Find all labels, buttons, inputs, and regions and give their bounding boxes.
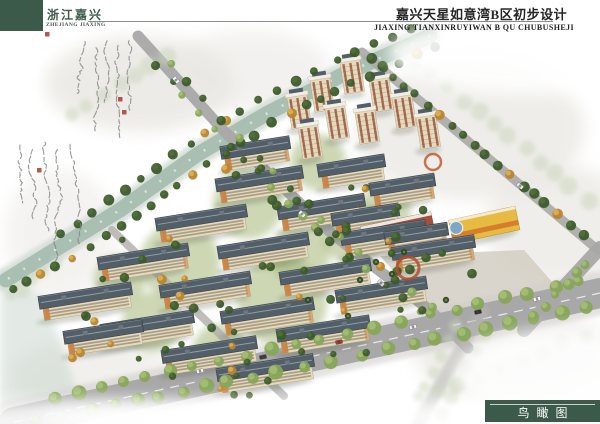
aerial-rendering: [0, 0, 600, 424]
caption-inner-line: [490, 404, 595, 405]
red-seal: [118, 97, 123, 102]
red-seal: [37, 168, 42, 173]
presentation-board: 浙江嘉兴 ZHEJIANG JIAXING 嘉兴天星如意湾B区初步设计 JIAX…: [0, 0, 600, 424]
project-subtitle: JIAXING TIANXINRUYIWAN B QU CHUBUSHEJI: [374, 23, 574, 32]
region-subtitle: ZHEJIANG JIAXING: [46, 22, 106, 28]
red-seal: [122, 110, 127, 115]
project-title: 嘉兴天星如意湾B区初步设计: [396, 4, 567, 23]
red-seal: [45, 32, 50, 37]
caption-label: 鸟瞰图: [485, 407, 600, 419]
view-caption: 鸟瞰图: [485, 400, 600, 422]
corner-mark: [0, 0, 43, 31]
